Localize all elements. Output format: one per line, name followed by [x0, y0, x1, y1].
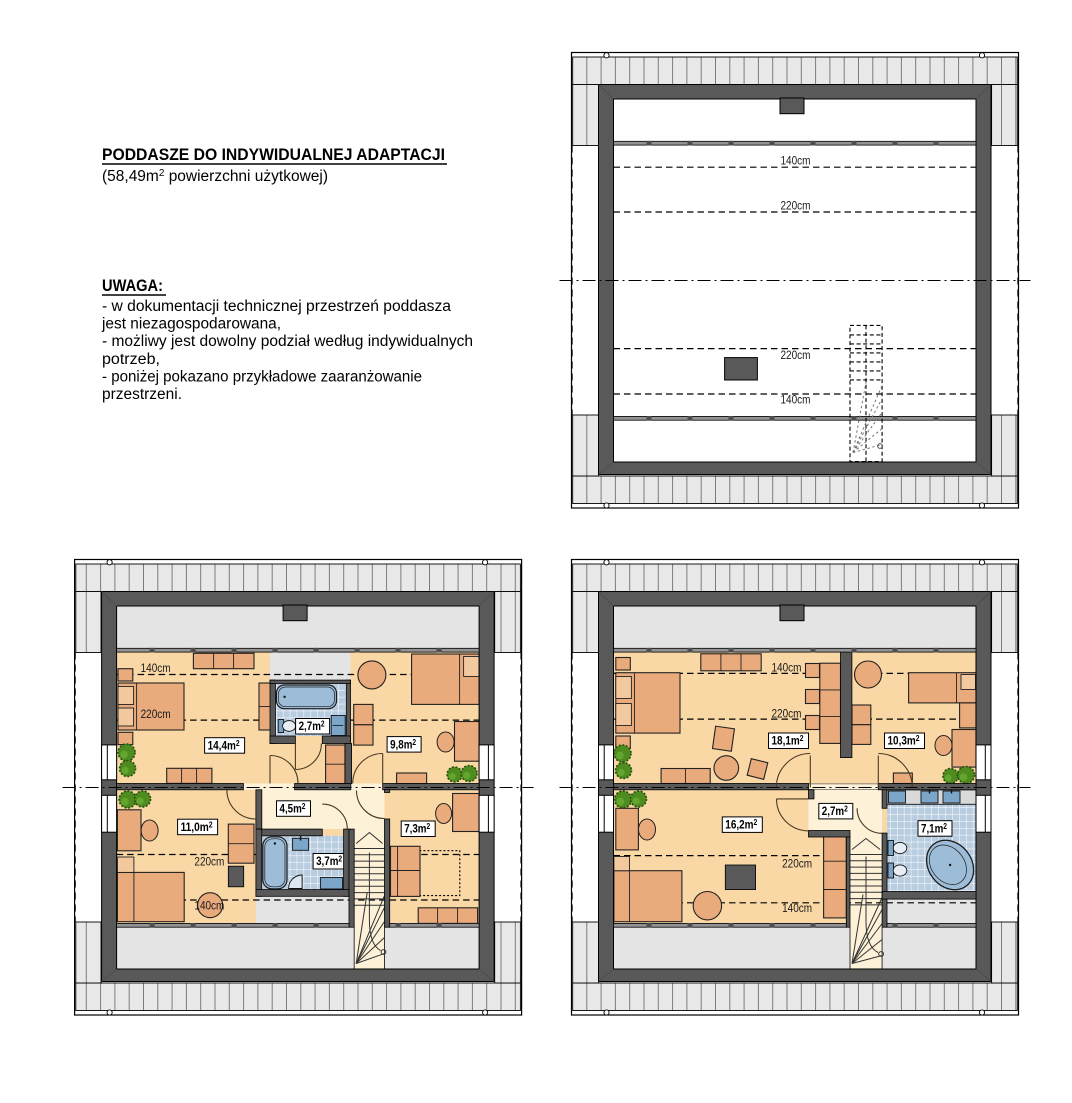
svg-text:140cm: 140cm [781, 395, 811, 407]
svg-text:220cm: 220cm [141, 709, 171, 721]
svg-text:jest niezagospodarowana,: jest niezagospodarowana, [101, 316, 281, 333]
svg-text:140cm: 140cm [772, 663, 802, 675]
svg-text:(58,49m2 powierzchni użytkowej: (58,49m2 powierzchni użytkowej) [102, 168, 328, 185]
svg-text:- możliwy jest dowolny podział: - możliwy jest dowolny podział według in… [102, 333, 473, 350]
svg-text:220cm: 220cm [781, 350, 811, 362]
svg-text:16,2m2: 16,2m2 [725, 818, 757, 832]
svg-text:14,4m2: 14,4m2 [208, 738, 240, 752]
svg-text:140cm: 140cm [194, 901, 224, 913]
svg-text:220cm: 220cm [782, 859, 812, 871]
svg-text:- poniżej pokazano przykładowe: - poniżej pokazano przykładowe zaaranżow… [102, 368, 422, 385]
svg-text:220cm: 220cm [772, 709, 802, 721]
svg-text:potrzeb,: potrzeb, [102, 351, 160, 368]
svg-text:220cm: 220cm [781, 201, 811, 213]
svg-text:UWAGA:: UWAGA: [102, 277, 163, 295]
svg-text:140cm: 140cm [781, 156, 811, 168]
svg-text:18,1m2: 18,1m2 [772, 734, 804, 748]
svg-text:11,0m2: 11,0m2 [181, 820, 213, 834]
svg-text:PODDASZE DO INDYWIDUALNEJ ADAP: PODDASZE DO INDYWIDUALNEJ ADAPTACJI [102, 146, 445, 164]
svg-text:140cm: 140cm [141, 663, 171, 675]
svg-text:220cm: 220cm [194, 857, 224, 869]
svg-text:10,3m2: 10,3m2 [888, 734, 920, 748]
svg-text:przestrzeni.: przestrzeni. [102, 386, 182, 403]
svg-text:140cm: 140cm [782, 903, 812, 915]
svg-text:- w dokumentacji technicznej p: - w dokumentacji technicznej przestrzeń … [102, 298, 451, 315]
